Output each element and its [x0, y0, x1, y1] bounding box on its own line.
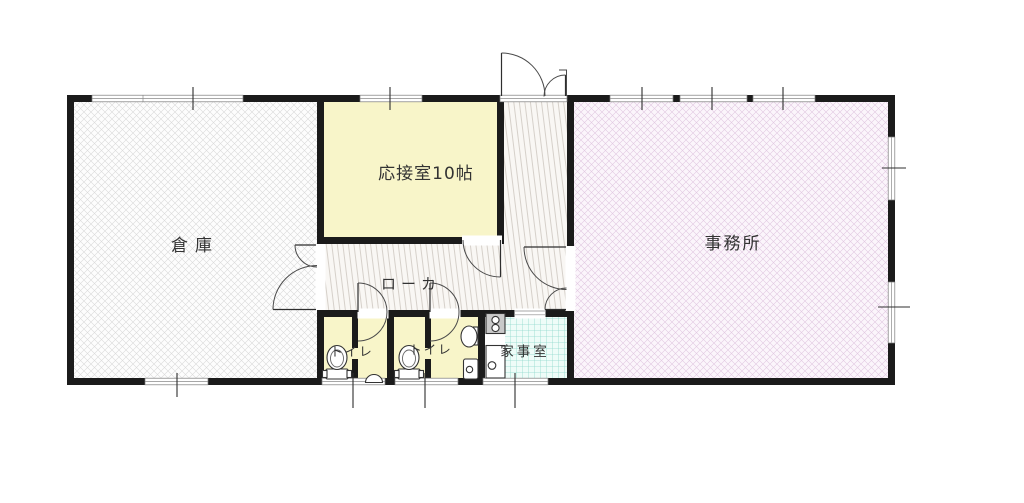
label-warehouse: 倉庫	[171, 236, 219, 256]
warehouse-door-opening	[316, 244, 326, 310]
label-toilet-1: トイレ	[330, 344, 374, 359]
window	[360, 95, 422, 102]
window	[888, 282, 895, 343]
wall-left	[67, 95, 74, 385]
window	[753, 95, 815, 102]
label-office: 事務所	[705, 234, 762, 254]
floor-plan: 倉庫 応接室10帖 ローカ 事務所 トイレ トイレ 家事室	[0, 0, 1024, 503]
stove-icon	[486, 314, 505, 334]
utility-opening	[515, 309, 546, 319]
toilet-1-door-opening	[358, 309, 389, 319]
mop-sink-icon	[464, 359, 479, 379]
entrance-threshold	[500, 95, 567, 102]
wall-toilet2-partition-b	[425, 359, 431, 378]
window	[92, 95, 243, 102]
toilet-2-door-opening	[430, 309, 461, 319]
hand-sink-icon	[461, 326, 478, 347]
wall-toilet-divider	[387, 317, 394, 378]
wall-office-left	[567, 102, 574, 378]
office-door-opening	[566, 246, 576, 311]
reception-door-opening	[462, 236, 502, 246]
wall-entrance-left	[497, 95, 504, 244]
label-corridor: ローカ	[381, 275, 441, 293]
wall-toilet2-right	[478, 317, 485, 378]
corridor-floor	[324, 244, 567, 310]
label-toilet-2: トイレ	[409, 342, 453, 357]
label-reception: 応接室10帖	[378, 164, 474, 184]
label-utility: 家事室	[500, 343, 550, 360]
floor-plan-page: 倉庫 応接室10帖 ローカ 事務所 トイレ トイレ 家事室	[0, 0, 1024, 503]
entrance-double-door	[502, 53, 566, 97]
window	[680, 95, 747, 102]
